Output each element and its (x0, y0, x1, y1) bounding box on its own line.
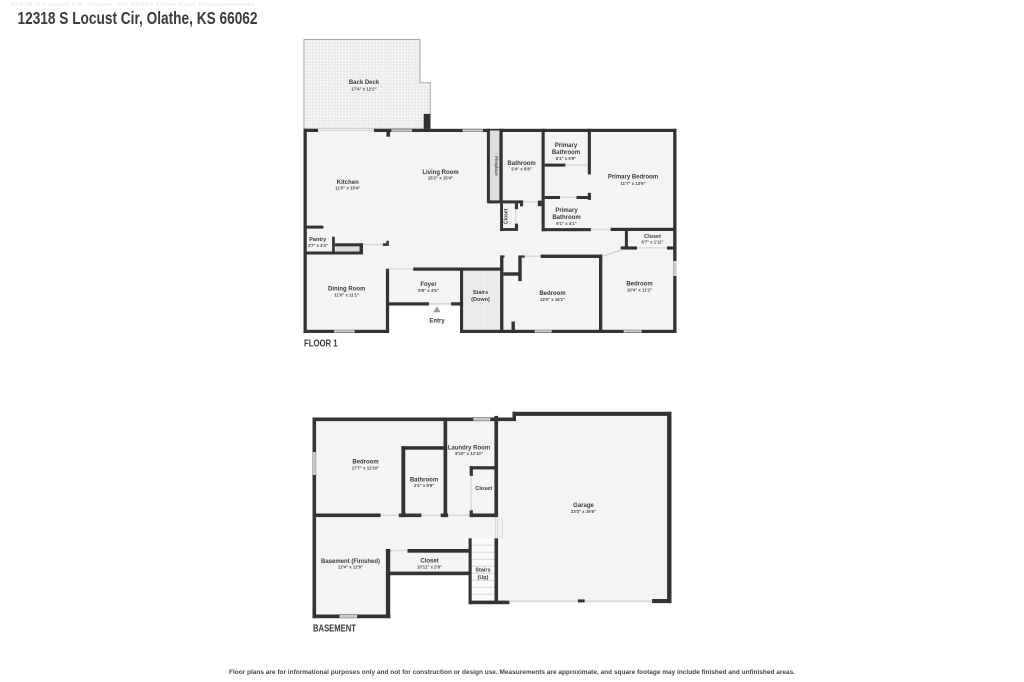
svg-text:5'4" x 9'8": 5'4" x 9'8" (511, 167, 531, 172)
svg-text:Closet: Closet (475, 486, 492, 492)
svg-text:10'11" x 2'8": 10'11" x 2'8" (417, 565, 442, 570)
svg-text:12'4" x 12'6": 12'4" x 12'6" (338, 565, 363, 570)
svg-text:Primary Bedroom: Primary Bedroom (608, 175, 658, 181)
svg-text:6'1" x 4'1": 6'1" x 4'1" (556, 221, 576, 226)
svg-text:(Up): (Up) (478, 575, 489, 581)
svg-text:FLOOR 1: FLOOR 1 (304, 338, 338, 349)
svg-text:Entry: Entry (429, 319, 445, 325)
svg-text:3'4" x 9'9": 3'4" x 9'9" (414, 483, 434, 488)
svg-text:BASEMENT: BASEMENT (313, 624, 356, 635)
svg-text:8'10" x 12'10": 8'10" x 12'10" (455, 451, 483, 456)
svg-text:11'7" x 13'6": 11'7" x 13'6" (621, 181, 646, 186)
svg-text:Primary: Primary (555, 143, 578, 149)
svg-text:15'2" x 15'4": 15'2" x 15'4" (428, 176, 453, 181)
svg-text:6'1" x 9'9": 6'1" x 9'9" (556, 156, 576, 161)
svg-text:Stairs: Stairs (475, 568, 490, 574)
svg-text:Floor plans are for informatio: Floor plans are for informational purpos… (229, 669, 795, 676)
svg-text:Stairs: Stairs (473, 290, 488, 296)
svg-text:12318 S Locust Cir, Olathe, KS: 12318 S Locust Cir, Olathe, KS 66062 (18, 8, 258, 28)
svg-text:Closet: Closet (504, 208, 510, 224)
svg-text:Back Deck: Back Deck (349, 80, 380, 86)
svg-text:Primary: Primary (555, 208, 578, 214)
svg-text:3'7" x 3'3": 3'7" x 3'3" (308, 243, 328, 248)
svg-text:(Down): (Down) (471, 297, 490, 303)
svg-text:9'8" x 4'5": 9'8" x 4'5" (418, 288, 438, 293)
svg-text:6'7" x 1'11": 6'7" x 1'11" (641, 240, 663, 245)
svg-text:17'7" x 12'10": 17'7" x 12'10" (352, 465, 380, 470)
svg-text:23'3" x 26'6": 23'3" x 26'6" (571, 509, 596, 514)
svg-text:Fireplace: Fireplace (494, 156, 499, 176)
svg-text:10'4" x 11'2": 10'4" x 11'2" (627, 287, 652, 292)
svg-text:13'0" x 16'1": 13'0" x 16'1" (540, 297, 565, 302)
svg-text:12318 S Locust Cir, Olathe, KS: 12318 S Locust Cir, Olathe, KS 66062 Flo… (10, 2, 255, 8)
svg-text:11'0" x 11'1": 11'0" x 11'1" (334, 292, 359, 297)
svg-text:17'4" x 12'2": 17'4" x 12'2" (351, 87, 376, 92)
svg-text:11'0" x 15'4": 11'0" x 15'4" (335, 186, 360, 191)
